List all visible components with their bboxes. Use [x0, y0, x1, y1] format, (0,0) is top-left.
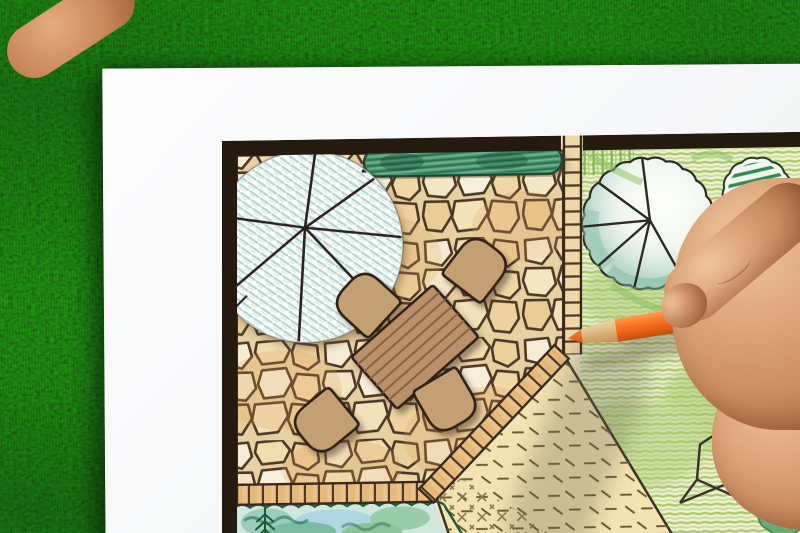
watercolor-planting-bed: [234, 501, 464, 533]
brick-path-vertical: [563, 135, 582, 354]
brick-band-bottom: [237, 482, 434, 505]
photo-scene: [0, 0, 800, 533]
